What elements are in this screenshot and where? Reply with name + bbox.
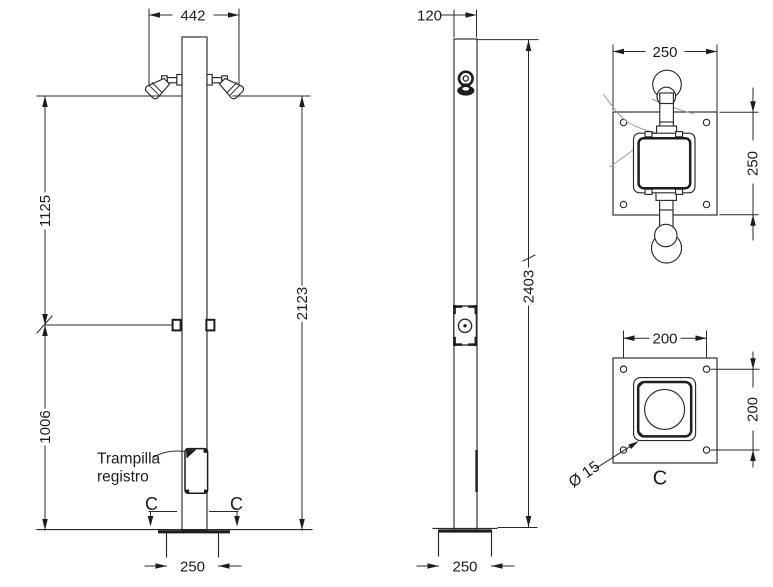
plan-shower-assembly: [634, 70, 696, 263]
technical-drawing-canvas: 442 1125: [0, 0, 773, 587]
front-dim-upper-height: 1125: [37, 96, 54, 325]
section-marker-left-label: C: [145, 494, 158, 514]
section-dim-hole-spacing-y: 200: [711, 352, 762, 467]
front-view: 442 1125: [37, 7, 312, 575]
push-button-right: [206, 320, 214, 331]
section-inner-pipe: [645, 389, 685, 429]
side-dim-width-label: 120: [417, 7, 442, 24]
plan-dim-width-label: 250: [652, 44, 677, 61]
front-dim-width-label: 442: [180, 7, 205, 24]
trapdoor: [185, 449, 208, 494]
button-panel: [454, 306, 477, 345]
shower-head-side-icon: [457, 72, 474, 96]
section-marker-left: C: [145, 494, 177, 527]
front-dim-upper-height-label: 1125: [37, 195, 54, 227]
front-dim-base-width: 250: [145, 558, 241, 575]
plan-view: 250: [603, 44, 762, 263]
side-base: [433, 528, 497, 556]
section-hole-bottom-right: [703, 447, 709, 453]
section-hole-top-left: [620, 366, 626, 372]
plan-hole-bottom-right: [703, 201, 709, 207]
side-post: [454, 39, 477, 530]
front-dim-lower-height: 1006: [37, 325, 54, 530]
section-tube: [634, 378, 696, 441]
section-dim-hole-spacing-y-label: 200: [745, 397, 762, 422]
section-view: 200 200 Ø: [566, 331, 762, 492]
section-label: C: [653, 468, 667, 490]
side-dim-base-width-label: 250: [452, 558, 477, 575]
shower-head-right-icon: [207, 75, 244, 99]
side-view: 120 2403: [417, 7, 538, 575]
section-marker-right: C: [210, 494, 244, 527]
hole-diameter-label: Ø 15: [566, 458, 603, 491]
plan-dim-height: 250: [720, 88, 762, 240]
side-dim-width: 120: [417, 7, 477, 37]
front-dim-lower-height-label: 1006: [37, 410, 54, 443]
plan-hole-bottom-left: [620, 201, 626, 207]
trapdoor-label-line2: registro: [97, 469, 149, 486]
section-hole-top-right: [703, 366, 709, 372]
front-dim-total-height-label: 2123: [294, 287, 311, 320]
plan-body-square: [639, 138, 691, 188]
section-dim-hole-spacing-x-label: 200: [652, 331, 677, 348]
section-marker-right-label: C: [230, 494, 243, 514]
side-dim-base-width: 250: [417, 558, 514, 575]
front-dim-base-width-label: 250: [180, 558, 205, 575]
plan-hole-top-right: [703, 119, 709, 125]
trapdoor-label-line1: Trampilla: [97, 451, 161, 468]
front-base: [37, 530, 312, 557]
plan-head-bottom-icon: [655, 224, 677, 246]
push-button-left: [173, 320, 181, 331]
plan-dim-height-label: 250: [745, 151, 762, 176]
side-dim-total-height: 2403: [477, 40, 538, 528]
shower-head-left-icon: [145, 75, 182, 99]
front-dim-total-height: 2123: [294, 96, 311, 530]
side-dim-total-height-label: 2403: [521, 270, 538, 303]
